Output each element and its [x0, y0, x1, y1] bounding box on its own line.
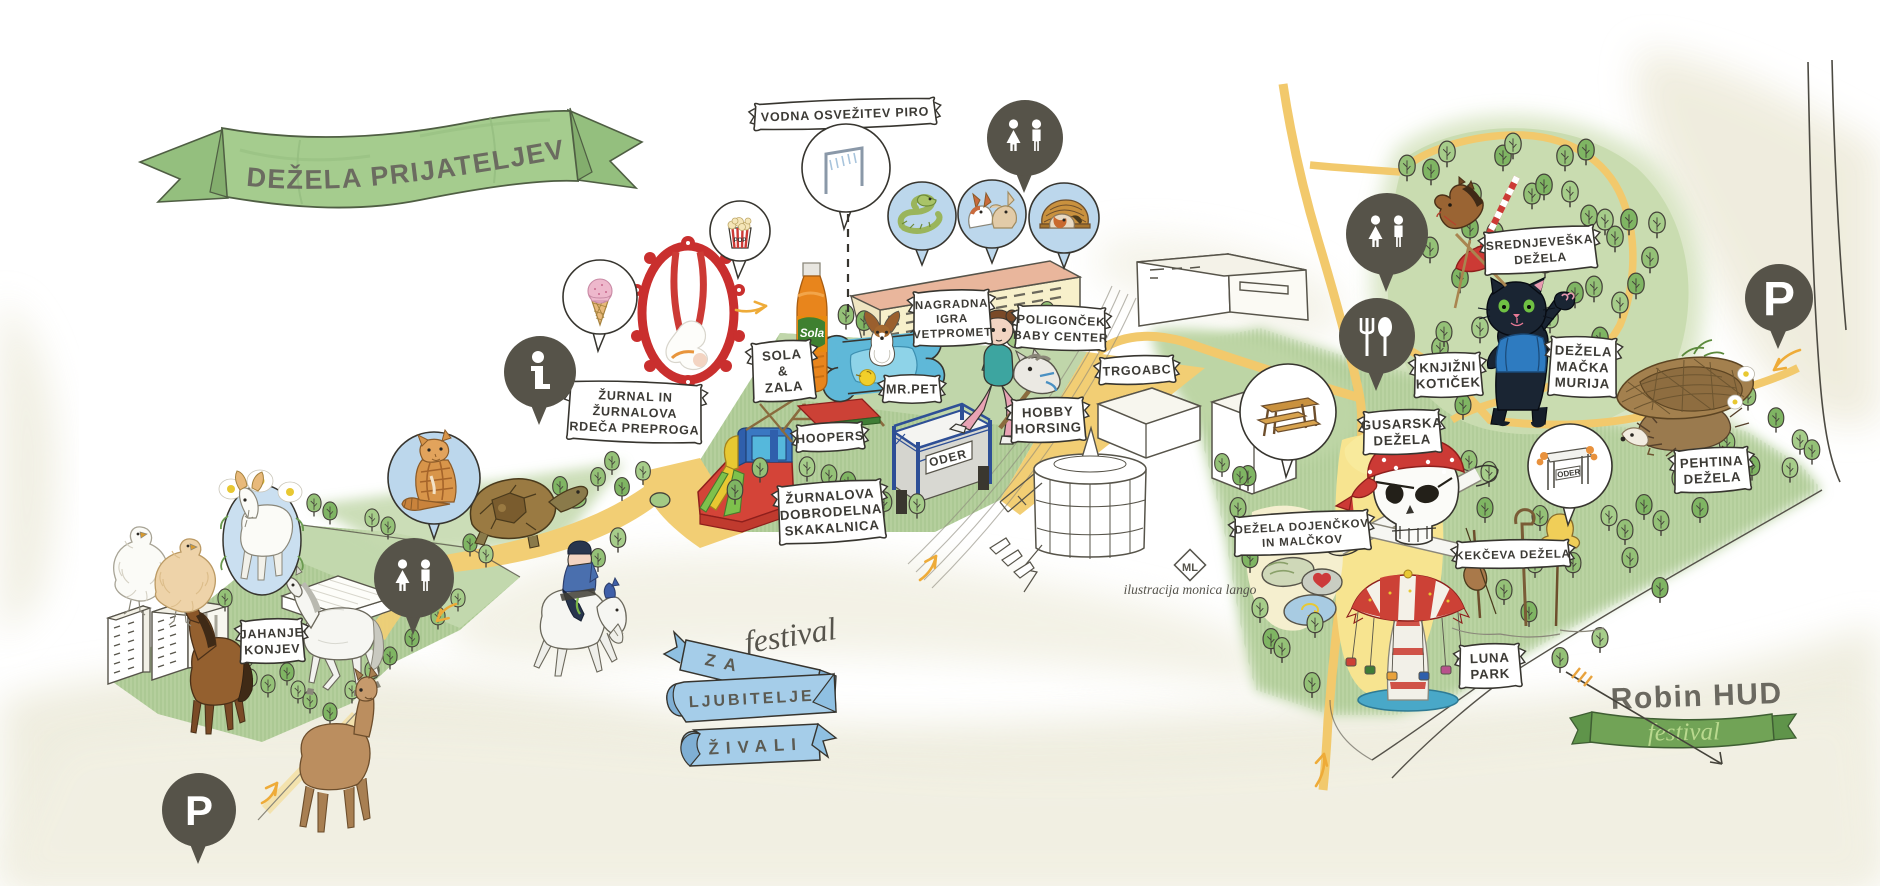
- svg-text:MAČKA: MAČKA: [1556, 359, 1610, 376]
- svg-text:IGRA: IGRA: [936, 313, 968, 326]
- svg-text:KOTIČEK: KOTIČEK: [1416, 374, 1481, 391]
- svg-text:SOLA: SOLA: [761, 346, 802, 364]
- svg-text:HORSING: HORSING: [1014, 419, 1082, 436]
- svg-text:KNJIŽNI: KNJIŽNI: [1419, 359, 1476, 376]
- svg-text:MR.PET: MR.PET: [886, 383, 938, 397]
- svg-text:TRGOABC: TRGOABC: [1102, 362, 1171, 378]
- svg-text:ZALA: ZALA: [764, 378, 803, 396]
- svg-text:&: &: [777, 363, 788, 379]
- svg-text:KEKČEVA DEŽELA: KEKČEVA DEŽELA: [1455, 547, 1571, 562]
- svg-text:DEŽELA: DEŽELA: [1555, 343, 1613, 360]
- svg-text:NAGRADNA: NAGRADNA: [915, 298, 989, 313]
- svg-text:MURIJA: MURIJA: [1555, 375, 1611, 392]
- svg-text:ŽURNALOVA: ŽURNALOVA: [592, 403, 677, 421]
- svg-text:ML: ML: [1182, 562, 1198, 574]
- svg-text:PARK: PARK: [1470, 666, 1510, 682]
- svg-text:JAHANJE: JAHANJE: [240, 625, 304, 641]
- svg-text:DEŽELA: DEŽELA: [1683, 469, 1741, 487]
- svg-text:P: P: [1763, 273, 1795, 326]
- svg-text:LUNA: LUNA: [1470, 650, 1510, 666]
- svg-text:ilustracija monica lango: ilustracija monica lango: [1124, 582, 1257, 597]
- svg-text:Sola: Sola: [800, 328, 825, 340]
- svg-text:KONJEV: KONJEV: [244, 642, 301, 658]
- svg-text:ŽURNAL IN: ŽURNAL IN: [598, 387, 673, 405]
- svg-text:POLIGONČEK: POLIGONČEK: [1017, 311, 1106, 329]
- svg-text:Robin HUD: Robin HUD: [1610, 677, 1783, 716]
- svg-text:P: P: [185, 787, 213, 834]
- svg-text:DEŽELA: DEŽELA: [1373, 431, 1431, 448]
- svg-text:GUSARSKA: GUSARSKA: [1361, 415, 1443, 433]
- svg-text:HOBBY: HOBBY: [1022, 404, 1074, 421]
- svg-text:POP: POP: [734, 238, 747, 244]
